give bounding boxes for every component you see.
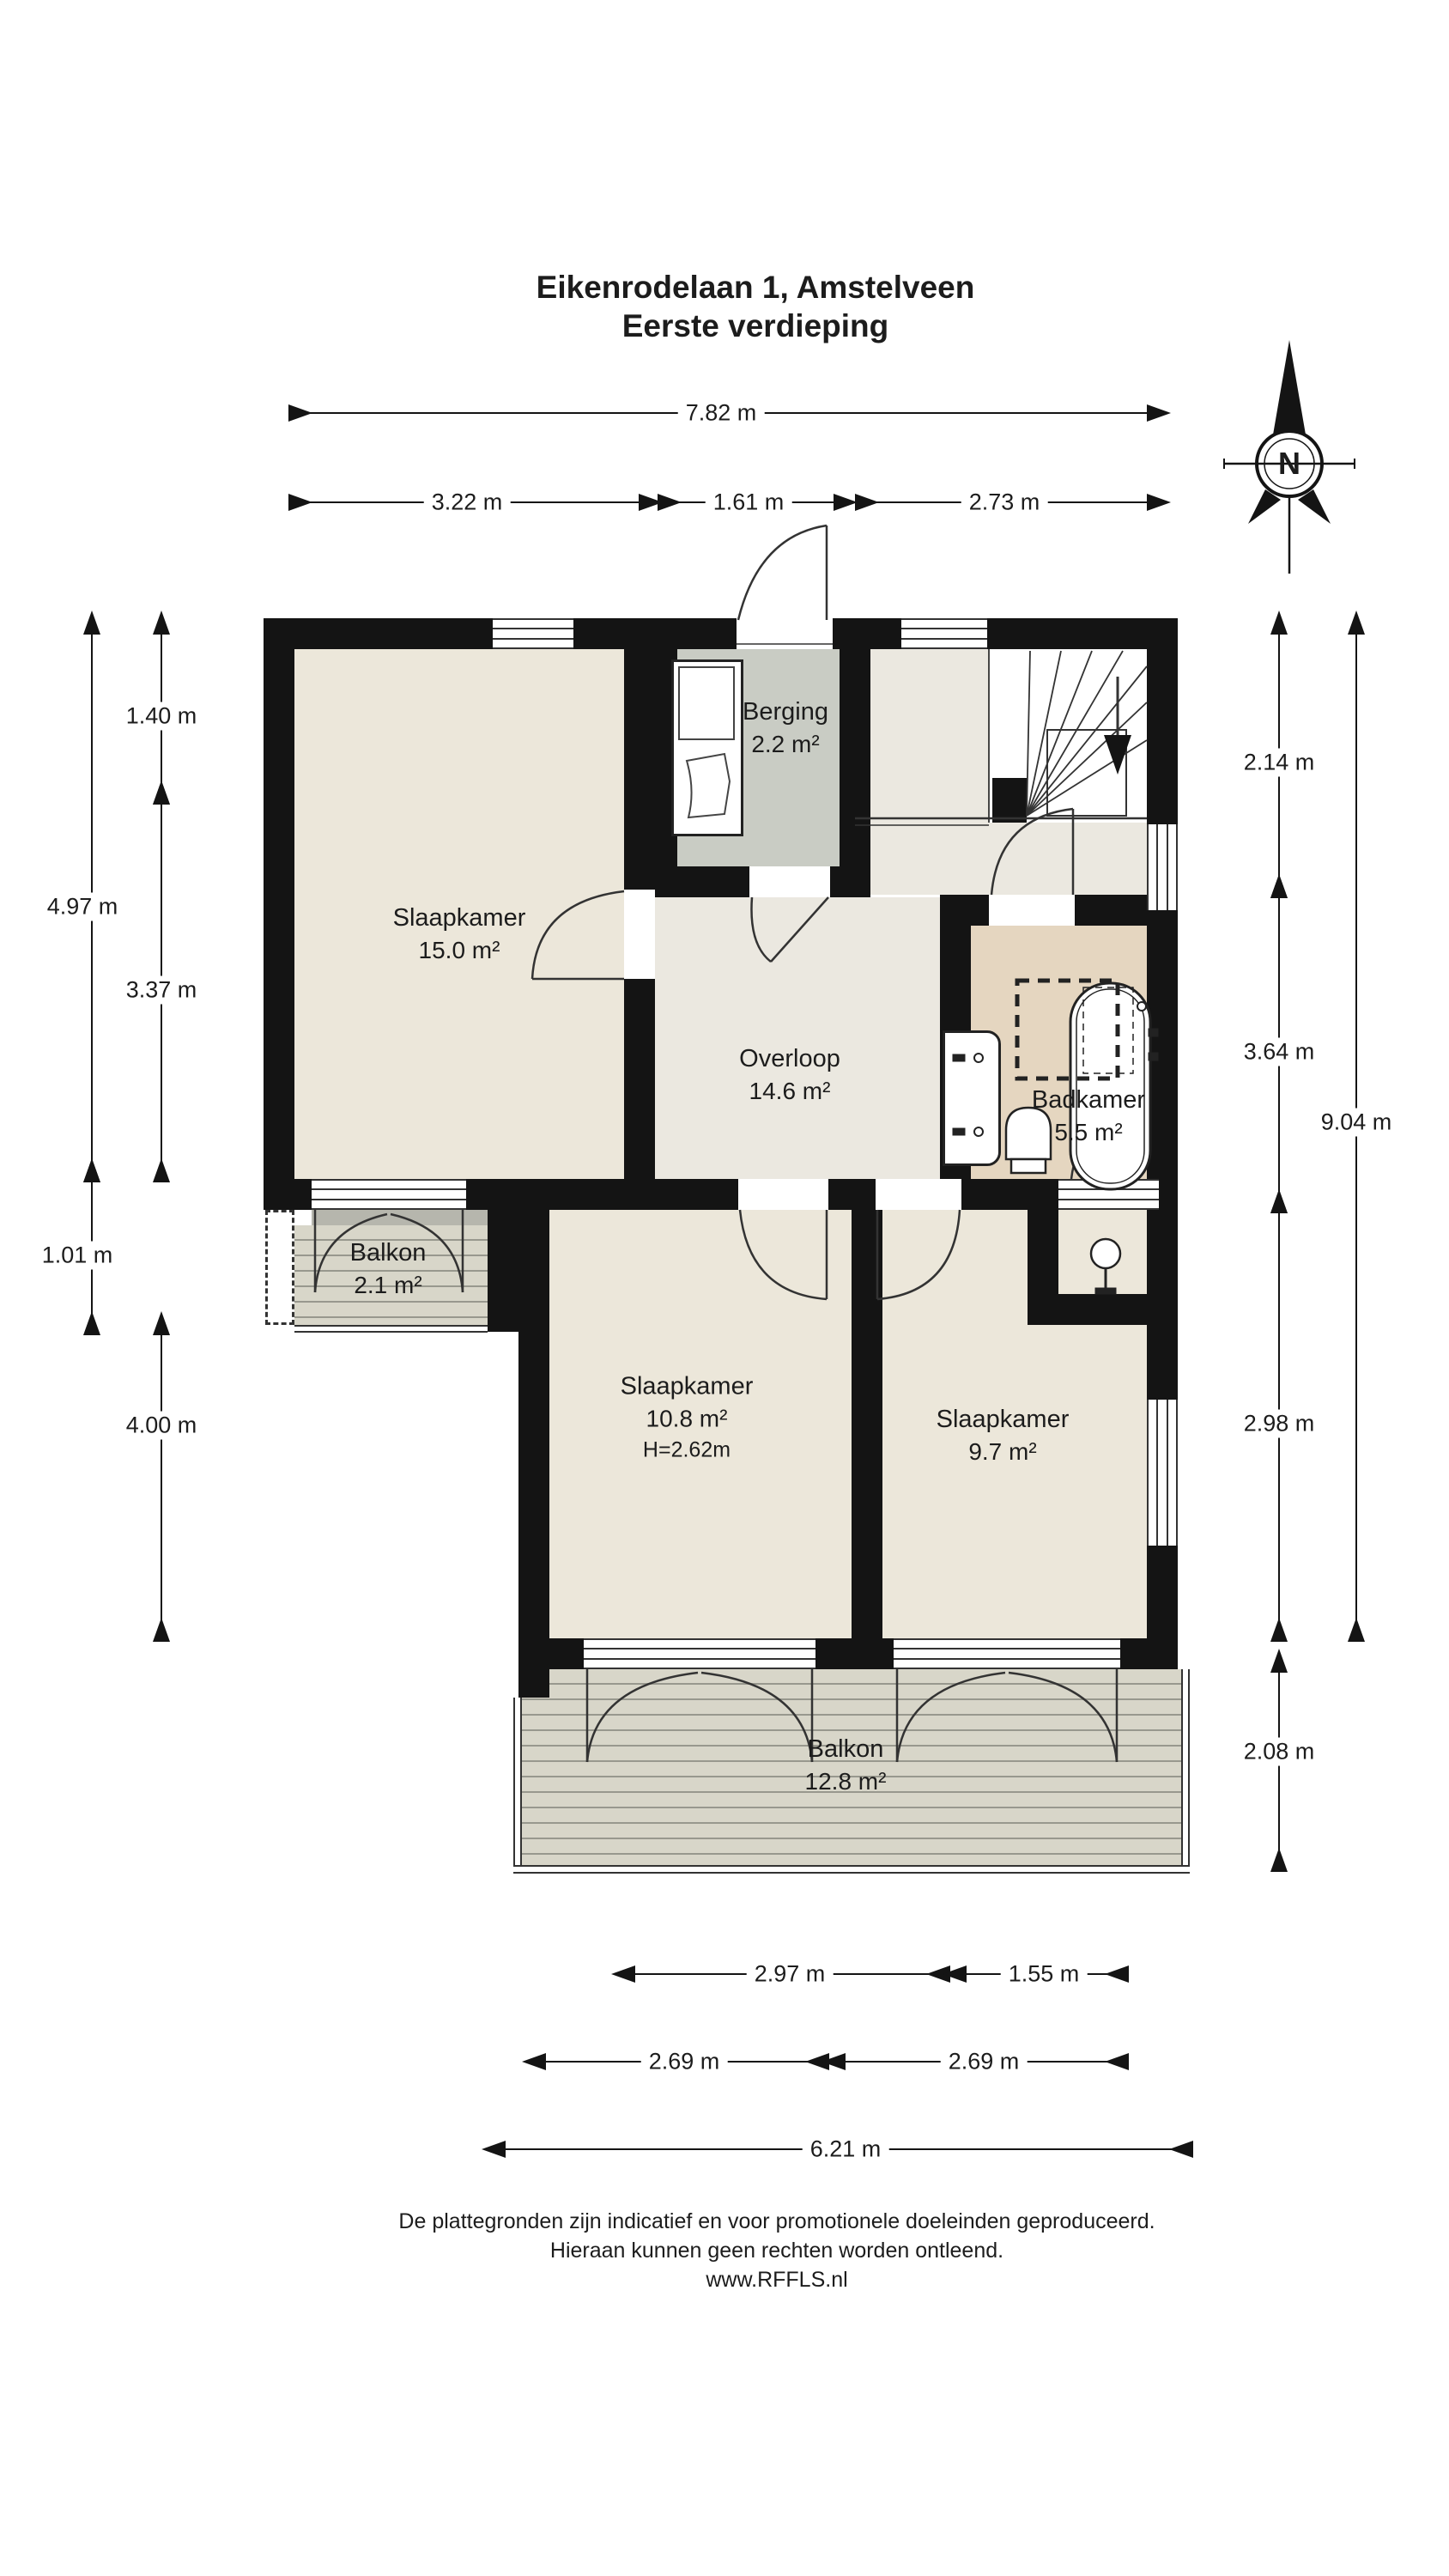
label-berging: Berging 2.2 m² [743,696,828,760]
label-balkon-groot: Balkon 12.8 m² [805,1734,887,1797]
room-name: Balkon [350,1237,427,1269]
dim-top-2: 1.61 m [706,489,792,517]
dim-bottom-269b: 2.69 m [941,2048,1028,2076]
room-name: Overloop [739,1043,840,1075]
dim-right-904: 9.04 m [1313,1109,1400,1137]
dim-left-337: 3.37 m [118,976,205,1005]
room-area: 14.6 m² [739,1075,840,1107]
dimension-lines [92,413,1356,2149]
dim-bottom-total: 6.21 m [803,2136,889,2164]
dim-top-1: 3.22 m [424,489,511,517]
washer-drum-icon [687,754,730,817]
dim-right-298: 2.98 m [1236,1410,1323,1438]
dim-left-140: 1.40 m [118,702,205,731]
room-area: 2.2 m² [743,728,828,760]
room-name: Slaapkamer [393,902,526,934]
dim-top-total: 7.82 m [678,399,765,428]
label-slaapkamer-108: Slaapkamer 10.8 m² H=2.62m [621,1371,754,1467]
dim-left-400: 4.00 m [118,1412,205,1440]
room-height: H=2.62m [621,1435,754,1467]
room-area: 5.5 m² [1032,1116,1145,1148]
dim-top-3: 2.73 m [961,489,1048,517]
room-area: 2.1 m² [350,1269,427,1301]
stairs-icon [855,649,1147,825]
dim-bottom-269a: 2.69 m [641,2048,728,2076]
room-name: Balkon [805,1734,887,1765]
stairs-down-arrow [1104,735,1131,775]
dim-bottom-155: 1.55 m [1001,1960,1088,1989]
dim-left-101: 1.01 m [34,1242,121,1270]
dim-bottom-297: 2.97 m [747,1960,834,1989]
dim-left-497: 4.97 m [39,893,126,921]
dim-right-208: 2.08 m [1236,1738,1323,1766]
room-name: Slaapkamer [621,1371,754,1403]
room-area: 10.8 m² [621,1403,754,1435]
room-area: 15.0 m² [393,934,526,966]
room-area: 12.8 m² [805,1765,887,1797]
label-balkon-klein: Balkon 2.1 m² [350,1237,427,1301]
faucet-icon [953,1054,983,1136]
room-name: Slaapkamer [937,1404,1070,1436]
dim-right-214: 2.14 m [1236,749,1323,777]
room-name: Berging [743,696,828,728]
compass-north-label: N [1278,446,1300,482]
plan-linework [0,0,1449,2576]
dim-right-364: 3.64 m [1236,1038,1323,1066]
room-area: 9.7 m² [937,1436,1070,1467]
label-slaapkamer-15: Slaapkamer 15.0 m² [393,902,526,966]
label-badkamer: Badkamer 5.5 m² [1032,1084,1145,1148]
label-overloop: Overloop 14.6 m² [739,1043,840,1107]
floorplan-page: Eikenrodelaan 1, Amstelveen Eerste verdi… [0,0,1449,2576]
room-name: Badkamer [1032,1084,1145,1116]
washbasin-icon [1091,1239,1120,1294]
label-slaapkamer-97: Slaapkamer 9.7 m² [937,1404,1070,1467]
